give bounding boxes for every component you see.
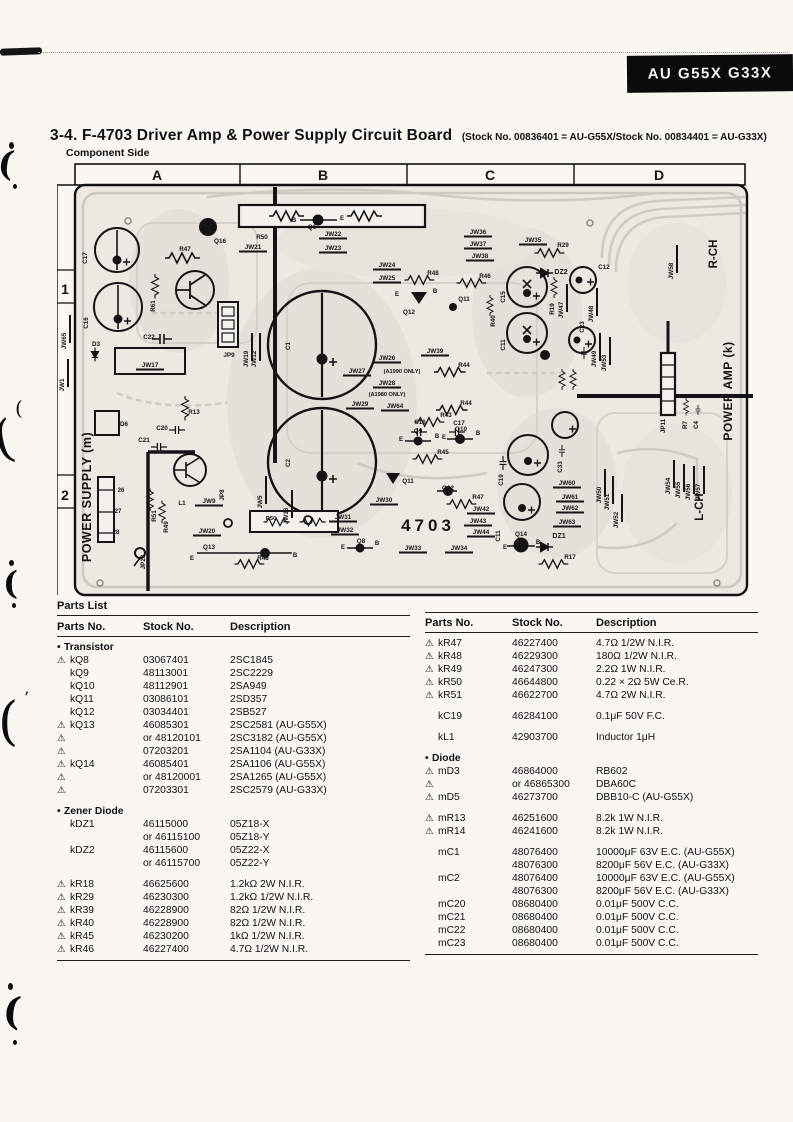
board-component-label: JW35 <box>525 237 542 244</box>
part-description: 2.2Ω 1W N.I.R. <box>596 663 758 676</box>
board-component-label: JP9 <box>223 352 235 359</box>
board-component-label: R47 <box>472 494 484 501</box>
model-banner-label: AU G55X G33X <box>648 64 773 82</box>
part-description: DBB10-C (AU-G55X) <box>596 791 758 804</box>
board-component-label: R17 <box>564 554 576 561</box>
stock-number: or 48120101 <box>143 732 230 745</box>
warning-triangle-icon <box>57 680 70 693</box>
stock-number: 08680400 <box>512 898 596 911</box>
part-description: 0.22 × 2Ω 5W Ce.R. <box>596 676 758 689</box>
part-description: 8200μF 56V E.C. (AU-G33X) <box>596 859 758 872</box>
board-component-label: JW52 <box>613 511 620 528</box>
stock-number: 08680400 <box>512 911 596 924</box>
grid-column-c: C <box>485 167 495 183</box>
parts-row: ⚠mD546273700DBB10-C (AU-G55X) <box>425 791 758 804</box>
stock-number: or 46865300 <box>512 778 596 791</box>
warning-triangle-icon: ⚠ <box>57 654 70 667</box>
board-component-label: JW25 <box>379 275 396 282</box>
part-number: kR46 <box>70 943 94 956</box>
board-component-label: JW5 <box>257 495 264 508</box>
parts-row: kQ12030344012SB527 <box>57 706 410 719</box>
parts-section-row: •Zener Diode <box>57 805 410 818</box>
board-component-label: JW62 <box>562 505 579 512</box>
board-component-label: JW9 <box>203 498 216 505</box>
board-component-label: JW1 <box>59 378 66 391</box>
parts-row: kQ9481130012SC2229 <box>57 667 410 680</box>
grid-column-a: A <box>152 167 162 183</box>
board-component-label: JW37 <box>470 241 487 248</box>
board-component-label: B <box>435 434 440 440</box>
warning-triangle-icon: ⚠ <box>425 689 438 702</box>
part-description: 8.2k 1W N.I.R. <box>596 825 758 838</box>
parts-row: ⚠kR51466227004.7Ω 2W N.I.R. <box>425 689 758 702</box>
board-component-label: B <box>375 541 380 547</box>
warning-triangle-icon: ⚠ <box>425 812 438 825</box>
parts-no-cell: mC1 <box>425 846 512 859</box>
parts-row: ⚠kQ13460853012SC2581 (AU-G55X) <box>57 719 410 732</box>
parts-row: ⚠kR47462274004.7Ω 1/2W N.I.R. <box>425 637 758 650</box>
parts-section-row: •Diode <box>425 752 758 765</box>
board-component-label: D3 <box>92 341 101 348</box>
board-component-label: JW28 <box>379 380 396 387</box>
warning-triangle-icon: ⚠ <box>425 663 438 676</box>
board-component-label: R48 <box>427 270 439 277</box>
section-bullet: • <box>425 752 432 765</box>
stock-number: 07203301 <box>143 784 230 797</box>
part-description: 2SC2229 <box>230 667 410 680</box>
grid-row-2: 2 <box>61 487 69 503</box>
board-component-label: C16 <box>414 419 426 426</box>
board-component-label: C17 <box>82 252 89 264</box>
part-number: mC1 <box>438 846 460 859</box>
board-component-label: 27 <box>115 509 122 515</box>
stock-number: 42903700 <box>512 731 596 744</box>
parts-no-cell <box>425 859 512 872</box>
parts-no-cell: ⚠kR46 <box>57 943 143 956</box>
section-title: Transistor <box>64 641 114 654</box>
parts-no-cell: mC20 <box>425 898 512 911</box>
parts-row: ⚠mR14462416008.2k 1W N.I.R. <box>425 825 758 838</box>
margin-mark: ’ <box>24 690 29 706</box>
board-component-label: C33 <box>557 461 564 473</box>
board-component-label: Q9 <box>414 428 423 435</box>
board-component-label: E <box>340 216 344 222</box>
part-description: 0.01μF 500V C.C. <box>596 937 758 950</box>
parts-no-cell: ⚠kR29 <box>57 891 143 904</box>
parts-list-heading: Parts List <box>57 600 410 616</box>
parts-no-cell: ⚠kR47 <box>425 637 512 650</box>
parts-no-cell: ⚠kR51 <box>425 689 512 702</box>
stock-number: 46230200 <box>143 930 230 943</box>
warning-triangle-icon <box>425 924 438 937</box>
board-component-label: JW32 <box>337 527 354 534</box>
stock-number: 46228900 <box>143 917 230 930</box>
parts-row: ⚠kR45462302001kΩ 1/2W N.I.R. <box>57 930 410 943</box>
margin-mark: ( <box>15 398 23 418</box>
parts-no-cell: ⚠ <box>425 778 512 791</box>
parts-no-cell: kC19 <box>425 710 512 723</box>
part-number: kC19 <box>438 710 462 723</box>
parts-no-cell: ⚠mR14 <box>425 825 512 838</box>
board-component-label: Q11 <box>458 296 470 303</box>
board-component-label: JW44 <box>473 529 490 536</box>
board-component-label: R45 <box>437 449 449 456</box>
part-description: 0.01μF 500V C.C. <box>596 911 758 924</box>
board-component-label: JW26 <box>379 355 396 362</box>
stock-number: 46241600 <box>512 825 596 838</box>
parts-no-cell: ⚠ <box>57 745 143 758</box>
stock-number: 48076400 <box>512 846 596 859</box>
connector-jp9 <box>218 302 238 347</box>
parts-no-cell: ⚠ <box>57 784 143 797</box>
stock-number: 46864000 <box>512 765 596 778</box>
warning-triangle-icon: ⚠ <box>57 719 70 732</box>
part-number: mD3 <box>438 765 460 778</box>
board-component-label: R46 <box>479 273 491 280</box>
parts-no-cell: ⚠kR50 <box>425 676 512 689</box>
parts-row: mC21086804000.01μF 500V C.C. <box>425 911 758 924</box>
part-number: kR49 <box>438 663 462 676</box>
stock-number: 48112901 <box>143 680 230 693</box>
warning-triangle-icon <box>425 872 438 885</box>
board-component-label: JW53 <box>601 354 608 371</box>
warning-triangle-icon: ⚠ <box>57 732 70 745</box>
stock-number: 46228900 <box>143 904 230 917</box>
section-title: Diode <box>432 752 461 765</box>
board-component-label: R49 <box>163 521 170 533</box>
part-description: Inductor 1μH <box>596 731 758 744</box>
margin-mark: ( <box>0 146 16 182</box>
parts-no-cell: kQ10 <box>57 680 143 693</box>
part-number: mR14 <box>438 825 465 838</box>
parts-no-cell: kL1 <box>425 731 512 744</box>
board-component-label: JW34 <box>451 545 468 552</box>
part-number: kR47 <box>438 637 462 650</box>
board-component-label: JP23 <box>140 554 147 569</box>
board-component-label: 26 <box>118 488 125 494</box>
warning-triangle-icon <box>425 911 438 924</box>
board-component-label: B <box>433 289 438 295</box>
board-component-label: Q6 <box>308 224 317 231</box>
warning-triangle-icon <box>425 898 438 911</box>
parts-row: or 4611510005Z18-Y <box>57 831 410 844</box>
board-component-label: JW65 <box>61 332 68 349</box>
parts-row: kL142903700Inductor 1μH <box>425 731 758 744</box>
parts-no-cell <box>57 831 143 844</box>
warning-triangle-icon <box>425 859 438 872</box>
column-header-stock-no: Stock No. <box>512 617 596 629</box>
right-channel-label: R-CH <box>708 240 720 269</box>
part-number: kR40 <box>70 917 94 930</box>
part-description: 2SA1106 (AU-G55X) <box>230 758 410 771</box>
part-description: 0.01μF 500V C.C. <box>596 898 758 911</box>
part-number: kQ13 <box>70 719 95 732</box>
board-component-label: C22 <box>143 334 155 341</box>
section-number: 3-4. <box>50 127 78 144</box>
part-description: 2SC3182 (AU-G55X) <box>230 732 410 745</box>
warning-triangle-icon <box>57 844 70 857</box>
warning-triangle-icon: ⚠ <box>57 784 70 797</box>
column-header-description: Description <box>596 617 758 629</box>
board-component-label: JW39 <box>427 348 444 355</box>
part-description: 0.01μF 500V C.C. <box>596 924 758 937</box>
service-manual-page: ( ( ( ( ’ ( ( AU G55X G33X 3-4. F-4703 D… <box>0 0 793 1122</box>
parts-no-cell: ⚠kR45 <box>57 930 143 943</box>
board-component-label: DZ2 <box>554 269 567 276</box>
margin-mark: ( <box>3 567 18 599</box>
warning-triangle-icon <box>57 667 70 680</box>
part-description: 2SC2581 (AU-G55X) <box>230 719 410 732</box>
board-component-label: Q14 <box>515 531 527 538</box>
parts-no-cell: ⚠kQ14 <box>57 758 143 771</box>
board-component-label: JW51 <box>604 493 611 510</box>
board-component-label: JW36 <box>470 229 487 236</box>
part-description: 05Z22-X <box>230 844 410 857</box>
column-header-stock-no: Stock No. <box>143 621 230 633</box>
stock-number: 08680400 <box>512 924 596 937</box>
stock-number: 07203201 <box>143 745 230 758</box>
part-description: 05Z18-X <box>230 818 410 831</box>
board-component-label: C11 <box>500 339 507 351</box>
warning-triangle-icon: ⚠ <box>425 637 438 650</box>
stock-number: 46273700 <box>512 791 596 804</box>
stock-number: 46085401 <box>143 758 230 771</box>
board-component-label: JP8 <box>219 489 226 501</box>
margin-mark <box>13 184 17 189</box>
part-number: kR29 <box>70 891 94 904</box>
parts-no-cell: ⚠kR18 <box>57 878 143 891</box>
board-component-label: Q8 <box>357 538 366 545</box>
board-component-label: JW49 <box>591 350 598 367</box>
board-component-label: Q11 <box>402 478 414 485</box>
parts-no-cell: ⚠kR39 <box>57 904 143 917</box>
dual-resistor-block <box>239 205 425 227</box>
board-component-label: JW21 <box>245 244 262 251</box>
connector-jp11 <box>661 353 675 415</box>
stock-number: or 46115100 <box>143 831 230 844</box>
board-component-label: R29 <box>557 242 569 249</box>
board-number-label: 4703 <box>401 516 455 535</box>
part-description: 2SA1265 (AU-G55X) <box>230 771 410 784</box>
parts-row: ⚠072032012SA1104 (AU-G33X) <box>57 745 410 758</box>
circuit-board-diagram: R47Q16R50JW21BQ6EJW22JW23JW24JW25JW36JW3… <box>57 163 757 600</box>
board-component-label: JW43 <box>470 518 487 525</box>
part-number: kDZ1 <box>70 818 95 831</box>
parts-row: ⚠or 481200012SA1265 (AU-G55X) <box>57 771 410 784</box>
stock-number: 46247300 <box>512 663 596 676</box>
part-number: kR50 <box>438 676 462 689</box>
stock-number: 46227400 <box>143 943 230 956</box>
board-component-label: JW55 <box>675 481 682 498</box>
board-component-label: JW56 <box>685 483 692 500</box>
part-description: 2SC2579 (AU-G33X) <box>230 784 410 797</box>
stock-number: 08680400 <box>512 937 596 950</box>
part-description: 4.7Ω 1/2W N.I.R. <box>596 637 758 650</box>
parts-no-cell <box>425 885 512 898</box>
board-component-label: B <box>536 540 541 546</box>
parts-row: ⚠kR4846229300180Ω 1/2W N.I.R. <box>425 650 758 663</box>
board-component-label: C20 <box>156 425 168 432</box>
parts-row: mC20086804000.01μF 500V C.C. <box>425 898 758 911</box>
board-component-label: JW17 <box>142 362 159 369</box>
board-component-label: JW19 <box>243 350 250 367</box>
stock-number: 46085301 <box>143 719 230 732</box>
stock-number: 46115000 <box>143 818 230 831</box>
board-component-label: Q12 <box>442 485 454 492</box>
board-component-label: E <box>503 545 507 551</box>
board-component-label: JW29 <box>352 401 369 408</box>
board-component-label: R61 <box>150 300 157 312</box>
warning-triangle-icon <box>57 857 70 870</box>
parts-no-cell: ⚠kR49 <box>425 663 512 676</box>
parts-table-left: Parts List Parts No. Stock No. Descripti… <box>57 600 410 961</box>
parts-row: ⚠072033012SC2579 (AU-G33X) <box>57 784 410 797</box>
part-number: mD5 <box>438 791 460 804</box>
board-component-label: JW47 <box>558 301 565 318</box>
part-number: kL1 <box>438 731 455 744</box>
parts-no-cell: kQ11 <box>57 693 143 706</box>
stock-number: 46230300 <box>143 891 230 904</box>
grid-header <box>75 164 745 185</box>
board-component-label: JW27 <box>349 368 366 375</box>
board-component-label: JW61 <box>562 494 579 501</box>
parts-row: ⚠or 481201012SC3182 (AU-G55X) <box>57 732 410 745</box>
warning-triangle-icon <box>57 818 70 831</box>
parts-row: or 4611570005Z22-Y <box>57 857 410 870</box>
part-number: mC21 <box>438 911 465 924</box>
power-connector <box>98 477 114 542</box>
power-supply-region-label: POWER SUPPLY (m) <box>80 432 94 562</box>
parts-no-cell: mC22 <box>425 924 512 937</box>
part-description: 4.7Ω 2W N.I.R. <box>596 689 758 702</box>
board-component-label: Q10 <box>455 426 467 433</box>
board-component-label: JW12 <box>251 350 258 367</box>
column-header-parts-no: Parts No. <box>57 621 143 633</box>
part-description: 1.2kΩ 1/2W N.I.R. <box>230 891 410 904</box>
board-component-label: JW50 <box>596 486 603 503</box>
parts-no-cell: ⚠mD5 <box>425 791 512 804</box>
grid-row-1: 1 <box>61 281 69 297</box>
parts-row: ⚠kR46462274004.7Ω 1/2W N.I.R. <box>57 943 410 956</box>
parts-no-cell: ⚠mR13 <box>425 812 512 825</box>
grid-column-d: D <box>654 167 664 183</box>
board-component-label: C1 <box>285 341 292 350</box>
warning-triangle-icon: ⚠ <box>57 943 70 956</box>
parts-row: ⚠kR394622890082Ω 1/2W N.I.R. <box>57 904 410 917</box>
warning-triangle-icon <box>425 710 438 723</box>
board-component-label: DZ1 <box>552 533 565 540</box>
column-header-description: Description <box>230 621 410 633</box>
board-component-label: E <box>399 437 403 443</box>
board-component-label: B <box>293 553 298 559</box>
board-component-label: C16 <box>83 317 90 329</box>
stock-number: or 46115700 <box>143 857 230 870</box>
margin-mark: ( <box>0 696 18 748</box>
parts-row: mC23086804000.01μF 500V C.C. <box>425 937 758 950</box>
board-component-label: B <box>292 218 297 224</box>
section-bullet: • <box>57 641 64 654</box>
stock-number: 46625600 <box>143 878 230 891</box>
margin-mark <box>13 1040 17 1045</box>
warning-triangle-icon: ⚠ <box>425 650 438 663</box>
board-component-label: JW33 <box>405 545 422 552</box>
component-side-label: Component Side <box>66 147 149 159</box>
board-component-label: C15 <box>500 291 507 303</box>
part-description: 05Z22-Y <box>230 857 410 870</box>
parts-no-cell: mC2 <box>425 872 512 885</box>
warning-triangle-icon <box>425 885 438 898</box>
part-description: 2SA949 <box>230 680 410 693</box>
warning-triangle-icon: ⚠ <box>57 878 70 891</box>
part-number: kR48 <box>438 650 462 663</box>
part-number: kR39 <box>70 904 94 917</box>
warning-triangle-icon <box>425 731 438 744</box>
parts-no-cell: kQ12 <box>57 706 143 719</box>
board-component-label: R50 <box>266 516 277 522</box>
part-description: 10000μF 63V E.C. (AU-G55X) <box>596 872 758 885</box>
part-description: 1kΩ 1/2W N.I.R. <box>230 930 410 943</box>
part-number: kR51 <box>438 689 462 702</box>
parts-no-cell: ⚠kR48 <box>425 650 512 663</box>
warning-triangle-icon <box>425 937 438 950</box>
stock-number: 46622700 <box>512 689 596 702</box>
warning-triangle-icon <box>57 706 70 719</box>
part-number: kR45 <box>70 930 94 943</box>
board-component-label: R50 <box>256 234 268 241</box>
board-component-label: JW60 <box>559 480 576 487</box>
parts-row: kQ11030861012SD357 <box>57 693 410 706</box>
board-component-label: R44 <box>458 362 470 369</box>
warning-triangle-icon: ⚠ <box>57 771 70 784</box>
warning-triangle-icon: ⚠ <box>425 778 438 791</box>
board-component-label: Q13 <box>203 544 215 551</box>
parts-row: ⚠kR404622890082Ω 1/2W N.I.R. <box>57 917 410 930</box>
board-component-label: Q16 <box>214 238 226 245</box>
stock-number: 46115600 <box>143 844 230 857</box>
board-component-label: JW58 <box>668 262 675 279</box>
parts-no-cell: ⚠ <box>57 732 143 745</box>
parts-no-cell: mC23 <box>425 937 512 950</box>
part-number: kQ12 <box>70 706 95 719</box>
part-description: 82Ω 1/2W N.I.R. <box>230 917 410 930</box>
table-bottom-rule <box>57 960 410 961</box>
board-component-label: C19 <box>498 474 505 486</box>
board-component-label: R40 <box>490 315 497 327</box>
board-component-label: 28 <box>113 530 120 536</box>
grid-column-b: B <box>318 167 328 183</box>
scan-edge-artifact <box>0 47 42 55</box>
parts-row: ⚠kR49462473002.2Ω 1W N.I.R. <box>425 663 758 676</box>
part-description: 0.1μF 50V F.C. <box>596 710 758 723</box>
board-component-label: JW42 <box>473 506 490 513</box>
parts-row: mC22086804000.01μF 500V C.C. <box>425 924 758 937</box>
board-component-label: C11 <box>495 530 502 542</box>
board-component-label: R19 <box>549 303 556 315</box>
board-component-label: JW16 <box>283 507 290 524</box>
warning-triangle-icon <box>57 831 70 844</box>
parts-table-header: Parts No. Stock No. Description <box>57 617 410 637</box>
parts-no-cell: ⚠mD3 <box>425 765 512 778</box>
section-bullet: • <box>57 805 64 818</box>
part-description: 8200μF 56V E.C. (AU-G33X) <box>596 885 758 898</box>
warning-triangle-icon: ⚠ <box>57 930 70 943</box>
board-component-label: R7 <box>682 420 689 429</box>
part-number: kQ14 <box>70 758 95 771</box>
part-number: mR13 <box>438 812 465 825</box>
board-component-label: JW31 <box>335 514 352 521</box>
board-component-label: D6 <box>120 421 129 428</box>
parts-row: 480763008200μF 56V E.C. (AU-G33X) <box>425 885 758 898</box>
